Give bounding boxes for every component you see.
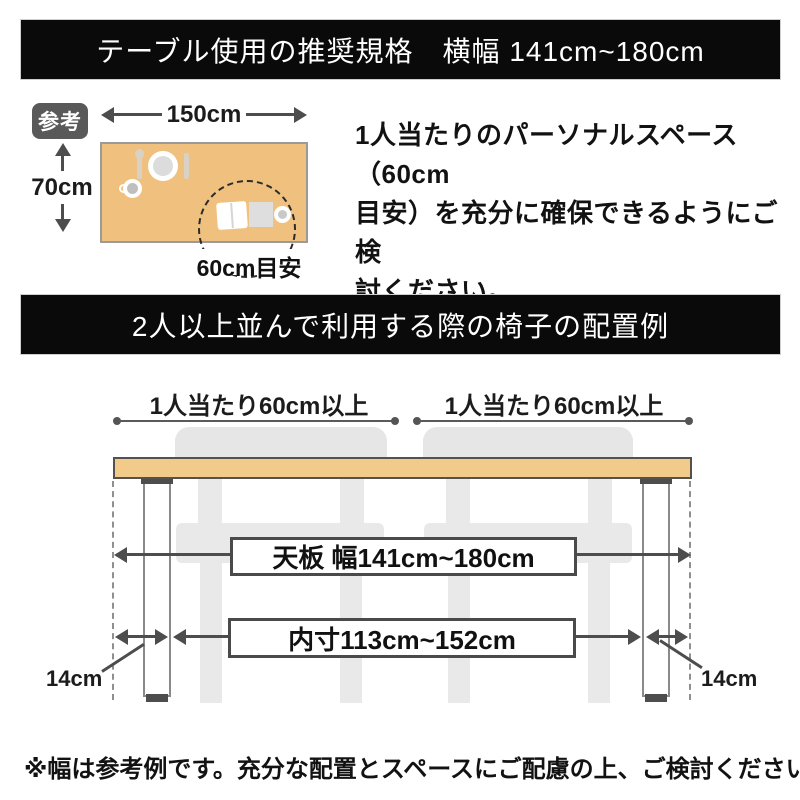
chair-back-post	[198, 479, 222, 529]
leg-cap-left	[141, 479, 173, 484]
note-line-2: 目安）を充分に確保できるようにご検	[355, 194, 785, 272]
chair-back-post	[588, 479, 612, 529]
note-line-1: 1人当たりのパーソナルスペース（60cm	[355, 116, 785, 194]
chair-back-post	[340, 479, 364, 529]
leg-cap-right	[640, 479, 672, 484]
dim-line	[113, 113, 162, 116]
leg-inset-right-label: 14cm	[701, 666, 757, 692]
chairs-banner: 2人以上並んで利用する際の椅子の配置例	[20, 294, 781, 355]
table-edge-dashed-line-left	[112, 481, 114, 700]
chair-leg	[588, 563, 610, 703]
cup-inner-icon	[127, 183, 138, 194]
magnifier-lens-icon	[278, 210, 287, 219]
notebook-icon	[249, 202, 273, 227]
leader-line	[101, 643, 145, 673]
table-depth-label: 70cm	[26, 174, 98, 202]
leg-foot-right	[645, 694, 667, 702]
tabletop	[113, 457, 692, 479]
arrow-down-icon	[55, 219, 71, 232]
arrow-left-icon	[646, 629, 659, 645]
arrow-left-icon	[173, 629, 186, 645]
arrow-right-icon	[155, 629, 168, 645]
leg-foot-left	[146, 694, 168, 702]
arrow-right-icon	[678, 547, 691, 563]
personal-space-label: 60cm目安	[194, 249, 304, 275]
chairs-banner-title: 2人以上並んで利用する際の椅子の配置例	[132, 305, 669, 345]
dim-line	[576, 635, 628, 638]
top-banner: テーブル使用の推奨規格 横幅 141cm~180cm	[20, 19, 781, 80]
inner-width-label: 内寸113cm~152cm	[288, 620, 516, 657]
infographic-table-size-guide: テーブル使用の推奨規格 横幅 141cm~180cm 参考 150cm 70cm…	[0, 0, 800, 800]
dim-line	[659, 635, 675, 638]
arrow-left-icon	[114, 547, 127, 563]
spoon-bowl-icon	[135, 149, 144, 159]
dim-line	[61, 155, 64, 171]
per-person-left-label: 1人当たり60cm以上	[139, 386, 379, 421]
dim-dot	[685, 417, 693, 425]
spoon-icon	[137, 156, 142, 179]
dim-line	[128, 635, 155, 638]
chair-backrest	[175, 427, 387, 461]
arrow-right-icon	[294, 107, 307, 123]
leg-inset-left-label: 14cm	[46, 666, 102, 692]
table-leg-right	[642, 479, 670, 697]
tabletop-width-label: 天板 幅141cm~180cm	[272, 538, 534, 575]
chair-backrest	[423, 427, 633, 461]
chair-back-post	[446, 479, 470, 529]
arrow-right-icon	[675, 629, 688, 645]
dim-line	[577, 553, 678, 556]
dim-line	[246, 113, 294, 116]
plate-inner-icon	[153, 156, 173, 176]
per-person-right-label: 1人当たり60cm以上	[434, 386, 674, 421]
dim-dot	[391, 417, 399, 425]
dim-line	[127, 553, 230, 556]
dim-line	[61, 204, 64, 220]
reference-badge: 参考	[32, 103, 88, 139]
table-width-label: 150cm	[162, 101, 246, 129]
dim-line	[419, 420, 687, 422]
top-banner-title: テーブル使用の推奨規格 横幅 141cm~180cm	[96, 30, 705, 70]
dim-line	[186, 635, 228, 638]
personal-space-note: 1人当たりのパーソナルスペース（60cm 目安）を充分に確保できるようにご検 討…	[355, 116, 785, 311]
tabletop-width-box: 天板 幅141cm~180cm	[230, 537, 577, 576]
arrow-right-icon	[628, 629, 641, 645]
chair-leg	[200, 563, 222, 703]
inner-width-box: 内寸113cm~152cm	[228, 618, 576, 658]
knife-icon	[184, 153, 189, 179]
table-edge-dashed-line-right	[689, 481, 691, 700]
reference-badge-label: 参考	[38, 106, 82, 136]
footer-note: ※幅は参考例です。充分な配置とスペースにご配慮の上、ご検討ください。	[24, 749, 800, 784]
arrow-left-icon	[115, 629, 128, 645]
table-leg-left	[143, 479, 171, 697]
dim-line	[119, 420, 395, 422]
